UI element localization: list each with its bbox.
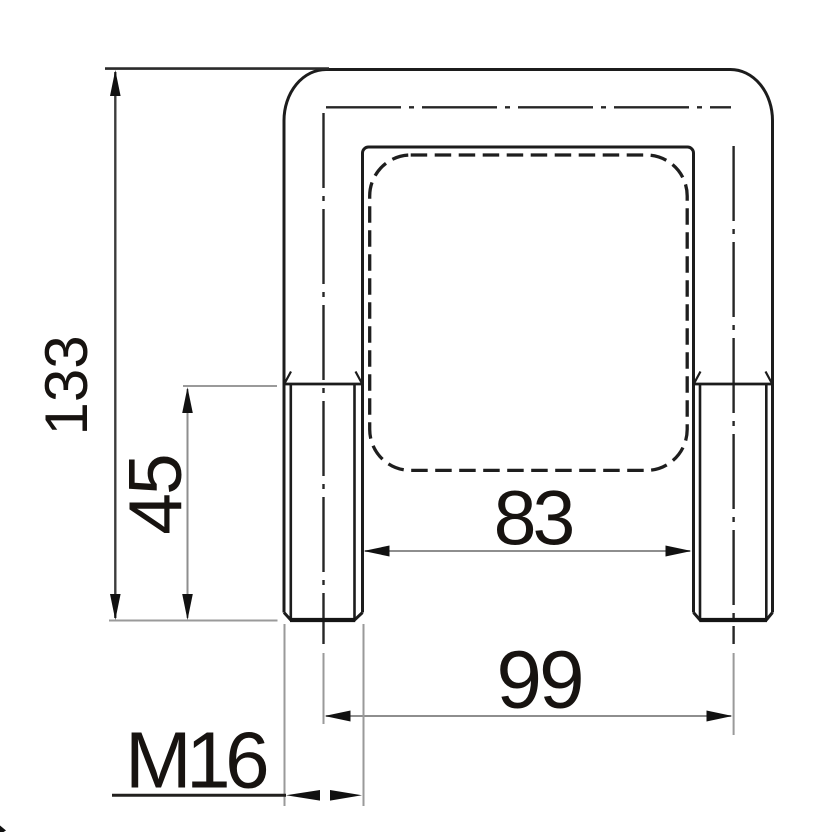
svg-text:83: 83	[494, 476, 573, 562]
svg-text:99: 99	[496, 635, 581, 726]
svg-text:45: 45	[113, 455, 197, 534]
svg-text:133: 133	[33, 335, 100, 435]
svg-text:M16: M16	[125, 716, 266, 805]
